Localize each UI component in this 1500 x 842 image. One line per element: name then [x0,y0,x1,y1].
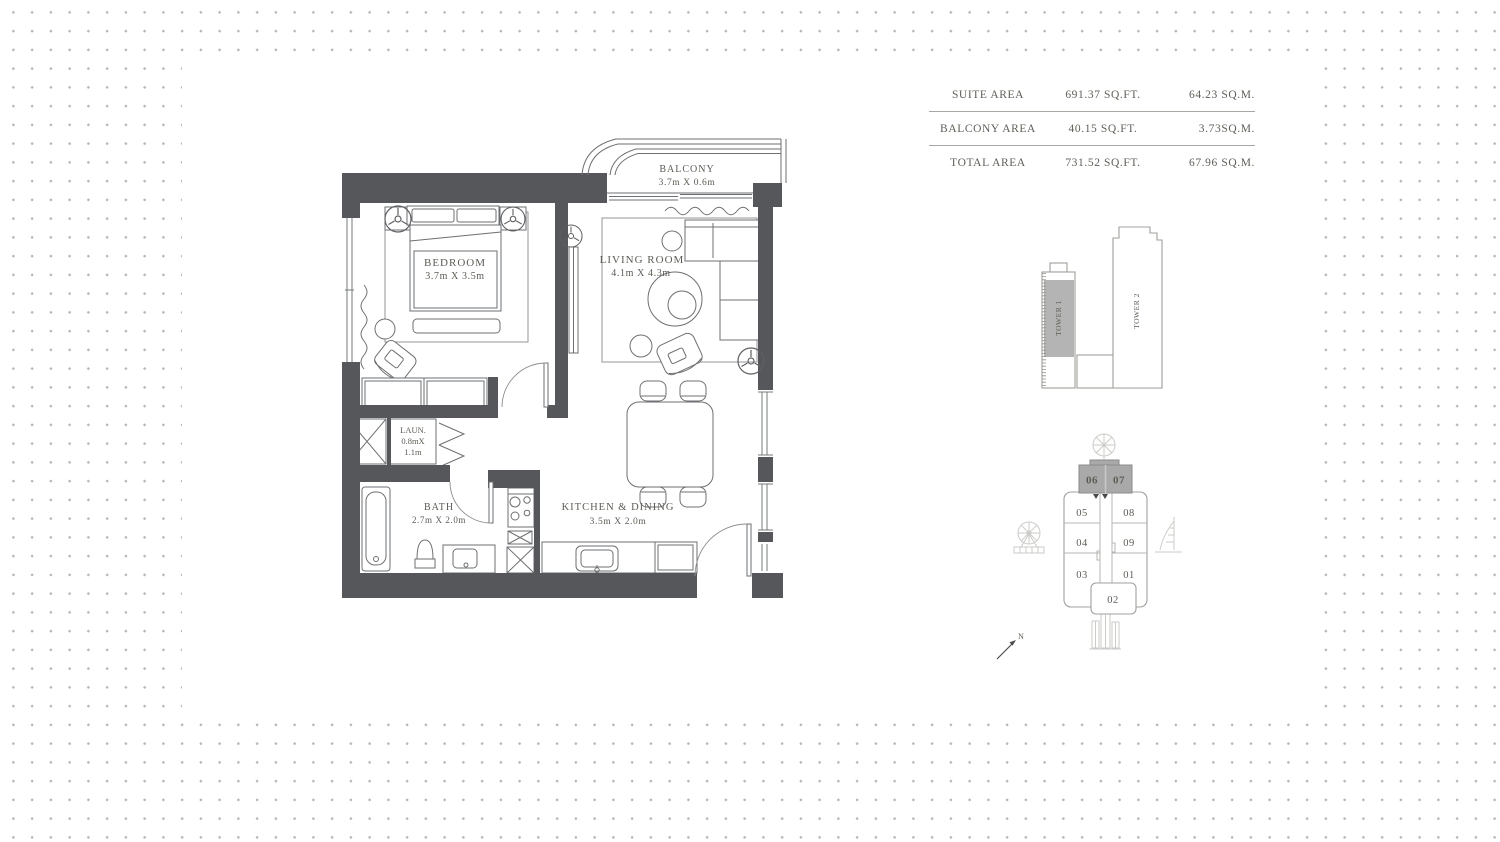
bedroom-dims: 3.7m X 3.5m [425,271,484,282]
skyline-icon [1089,614,1121,649]
balcony-dims: 3.7m X 0.6m [659,178,716,188]
unit-07: 07 [1113,475,1125,487]
floor-plan: BALCONY 3.7m X 0.6m BEDROOM 3.7m X 3.5m … [335,135,800,605]
bedroom-label: BEDROOM [424,257,486,269]
tower-key-diagram: TOWER 1 TOWER 2 [1025,218,1170,393]
dining-table [627,381,713,507]
unit-04: 04 [1076,538,1088,549]
unit-02: 02 [1107,595,1119,606]
unit-01: 01 [1123,570,1135,581]
toilet [415,540,435,568]
tower1-label: TOWER 1 [1054,300,1063,336]
balcony-label: BALCONY [659,164,714,175]
unit-06: 06 [1086,475,1098,487]
kitchen-counter [542,542,697,573]
area-row-sqm: 3.73SQ.M. [1159,123,1255,135]
stove [508,488,534,527]
living-room-label: LIVING ROOM [600,254,685,266]
bathtub [362,487,390,571]
window-right-upper [758,392,773,455]
unit-03: 03 [1076,570,1088,581]
window-left [345,218,354,362]
balcony-railing [582,139,786,183]
area-row-label: TOTAL AREA [929,157,1047,169]
bath-dims: 2.7m X 2.0m [412,515,466,525]
area-row-sqft: 691.37 SQ.FT. [1047,89,1159,101]
bedroom-side-table [375,319,395,339]
balcony-sliding-door [607,193,753,200]
burj-al-arab-icon [1155,517,1182,552]
tower-1: TOWER 1 [1042,263,1075,388]
living-armchair [655,331,705,378]
area-row-label: SUITE AREA [929,89,1047,101]
area-row-label: BALCONY AREA [929,123,1047,135]
kitchen-dining-dims: 3.5m X 2.0m [590,517,647,527]
kitchen-dining-label: KITCHEN & DINING [562,502,675,513]
service-shafts [507,531,534,573]
area-table: SUITE AREA 691.37 SQ.FT. 64.23 SQ.M. BAL… [929,78,1255,179]
laundry-bifold-door [439,423,464,467]
window-right-lower [758,484,773,530]
north-arrow-icon: N [997,632,1024,659]
laundry-label: LAUN. [400,425,426,435]
bedroom-door [502,363,548,407]
area-row-sqft: 40.15 SQ.FT. [1047,123,1159,135]
highlighted-unit-block: 06 07 [1079,460,1132,499]
area-row-sqm: 64.23 SQ.M. [1159,89,1255,101]
unit-08: 08 [1123,508,1135,519]
tower-2: TOWER 2 [1113,227,1162,388]
living-room-dims: 4.1m X 4.3m [611,268,670,279]
ferris-wheel-icon [1014,522,1044,553]
window-right-entry [762,544,767,571]
unit-09: 09 [1123,538,1135,549]
north-label: N [1018,632,1024,641]
bed [385,206,526,333]
tv-console [569,247,578,353]
laundry-dims-1: 0.8mX [401,436,424,446]
bath-label: BATH [424,502,454,513]
entrance-door [695,524,751,576]
tower2-label: TOWER 2 [1132,293,1141,329]
palm-tree-icon [1093,434,1115,463]
table-row: TOTAL AREA 731.52 SQ.FT. 67.96 SQ.M. [929,145,1255,179]
area-row-sqm: 67.96 SQ.M. [1159,157,1255,169]
bath-vanity [443,545,495,573]
unit-key-plan: 06 07 05 04 03 08 09 01 02 N [985,425,1215,670]
area-row-sqft: 731.52 SQ.FT. [1047,157,1159,169]
table-row: SUITE AREA 691.37 SQ.FT. 64.23 SQ.M. [929,78,1255,111]
table-row: BALCONY AREA 40.15 SQ.FT. 3.73SQ.M. [929,111,1255,145]
laundry-dims-2: 1.1m [404,447,422,457]
sofa [685,220,765,340]
unit-05: 05 [1076,508,1088,519]
